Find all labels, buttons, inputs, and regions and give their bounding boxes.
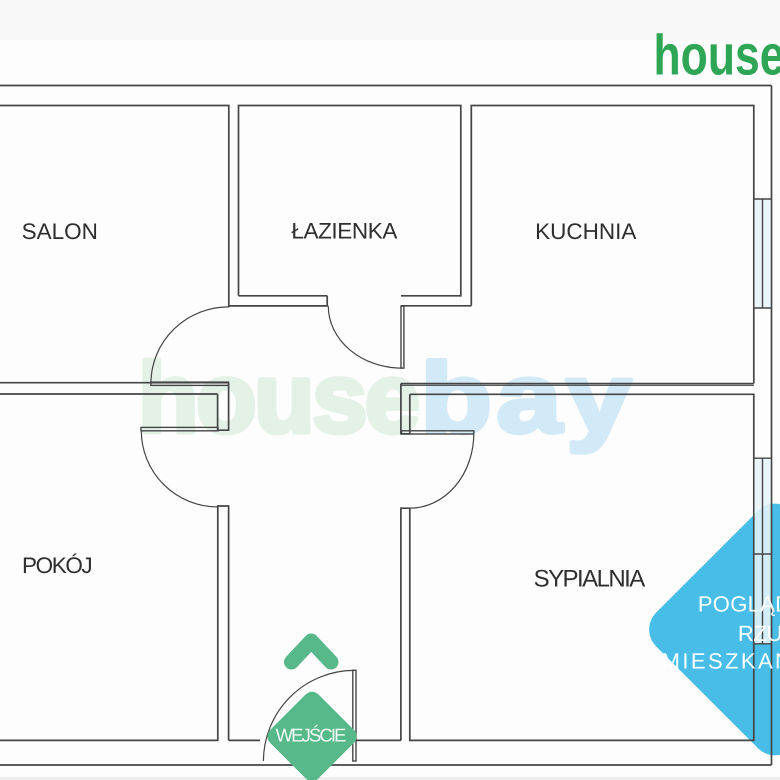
svg-text:ŁAZIENKA: ŁAZIENKA [291, 218, 397, 243]
svg-text:POKÓJ: POKÓJ [22, 553, 91, 578]
svg-text:bay: bay [421, 342, 636, 453]
svg-text:RZUT: RZUT [738, 621, 780, 646]
svg-text:MIESZKANIA: MIESZKANIA [662, 649, 780, 674]
svg-text:SYPIALNIA: SYPIALNIA [534, 566, 646, 593]
svg-text:WEJŚCIE: WEJŚCIE [276, 725, 347, 746]
svg-text:SALON: SALON [22, 219, 98, 244]
svg-text:house: house [654, 23, 780, 87]
svg-text:POGLĄDOWY: POGLĄDOWY [698, 592, 780, 617]
svg-text:KUCHNIA: KUCHNIA [535, 219, 636, 244]
svg-text:house: house [138, 342, 418, 453]
